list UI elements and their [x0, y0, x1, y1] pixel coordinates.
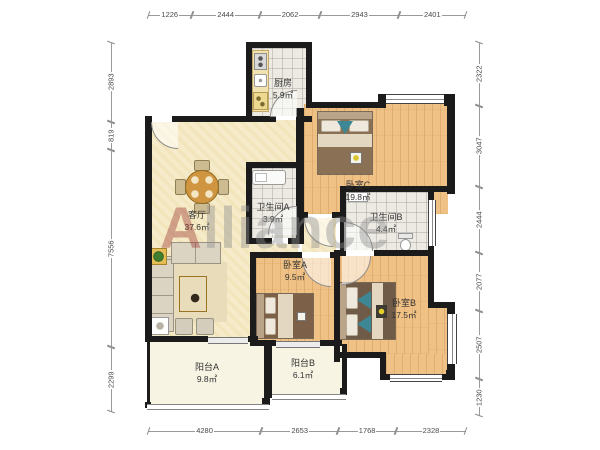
side-table [151, 317, 169, 335]
wall-segment [246, 162, 302, 168]
dimension-value: 1768 [358, 427, 377, 435]
stove-icon [254, 53, 267, 70]
dimension-value: 3047 [475, 137, 483, 156]
dimension-segment: 1226 [148, 8, 192, 22]
wall-segment [250, 252, 256, 346]
dimension-chain-bottom: 4280265317682328 [148, 424, 466, 438]
dimension-segment: 1230 [472, 379, 486, 416]
bed-sheet [278, 294, 293, 338]
wall-segment [306, 102, 384, 108]
floor-living-upper [250, 120, 298, 166]
pillow [346, 314, 358, 336]
dimension-value: 2893 [107, 73, 115, 92]
dimension-segment: 7556 [104, 150, 118, 347]
dimension-segment: 2322 [472, 42, 486, 106]
headboard [339, 283, 346, 339]
dimension-segment: 4280 [148, 424, 261, 438]
dimension-value: 819 [107, 129, 115, 144]
dimension-segment: 2444 [472, 187, 486, 254]
dimension-value: 2077 [475, 273, 483, 292]
dimension-value: 4280 [195, 427, 214, 435]
dimension-value: 7556 [107, 239, 115, 258]
ottoman [175, 318, 193, 335]
dimension-chain-right: 232230472444207725071230 [472, 42, 486, 416]
dimension-segment: 2328 [396, 424, 466, 438]
ottoman [196, 318, 214, 335]
room-area: 17.5㎡ [374, 310, 434, 320]
wall-segment [172, 116, 250, 122]
wall-segment [246, 42, 312, 48]
watermark-first-letter: A [160, 196, 203, 261]
dining-chair [218, 179, 229, 195]
wall-segment [246, 42, 252, 122]
wall-segment [250, 340, 276, 346]
dimension-value: 2507 [475, 335, 483, 354]
dimension-value: 1230 [475, 388, 483, 407]
pillow [265, 297, 276, 314]
bed-sheet [318, 134, 372, 147]
room-label-balcony-b: 阳台B 6.1㎡ [273, 358, 333, 380]
bed-lamp [297, 312, 306, 321]
wall-segment [147, 342, 150, 406]
dimension-value: 2444 [475, 211, 483, 230]
pillow [346, 287, 358, 309]
wall-segment [264, 340, 272, 398]
room-label-bedroom-b: 卧室B 17.5㎡ [374, 298, 434, 320]
balcony-glazing [147, 404, 269, 410]
dimension-value: 2299 [107, 370, 115, 389]
decor-pillow [357, 291, 371, 309]
window [390, 374, 442, 382]
bed-lamp [350, 152, 362, 164]
dimension-segment: 2653 [261, 424, 338, 438]
wall-post [446, 370, 455, 380]
dimension-chain-top: 12262444206229432401 [148, 8, 466, 22]
dimension-value: 2328 [422, 427, 441, 435]
dimension-segment: 2299 [104, 347, 118, 412]
dimension-value: 2401 [423, 11, 442, 19]
dimension-segment: 2943 [320, 8, 398, 22]
dimension-segment: 2507 [472, 311, 486, 379]
room-area: 5.9㎡ [253, 90, 313, 100]
headboard [318, 112, 372, 119]
bed-c [317, 111, 373, 175]
dimension-value: 2062 [281, 11, 300, 19]
wall-segment [447, 94, 455, 194]
window [447, 314, 457, 364]
dimension-segment: 2401 [399, 8, 466, 22]
dimension-value: 2322 [475, 64, 483, 83]
sliding-door [276, 341, 320, 348]
wall-segment [342, 344, 347, 392]
room-name: 卧室B [374, 298, 434, 310]
pillow [265, 318, 276, 335]
room-name: 阳台B [273, 358, 333, 370]
dimension-segment: 2893 [104, 42, 118, 122]
watermark-rest: lliance [203, 196, 391, 261]
dimension-segment: 1768 [338, 424, 396, 438]
headboard [257, 294, 264, 338]
sliding-door [208, 337, 248, 344]
dimension-segment: 2077 [472, 253, 486, 311]
wall-segment [145, 336, 208, 342]
dimension-segment: 2062 [260, 8, 321, 22]
wall-segment [378, 94, 386, 108]
balcony-glazing [272, 394, 346, 400]
room-area: 9.8㎡ [177, 374, 237, 384]
room-label-kitchen: 厨房 5.9㎡ [253, 78, 313, 100]
room-label-balcony-a: 阳台A 9.8㎡ [177, 362, 237, 384]
dimension-value: 2653 [290, 427, 309, 435]
room-name: 卧室A [265, 260, 325, 272]
wall-segment [334, 256, 340, 362]
bed-a [256, 293, 314, 339]
wall-segment [320, 340, 342, 346]
floor-plan: 厨房 5.9㎡ 卧室C 19.8㎡ 卫生间A 3.9㎡ 卫生间B 4.4㎡ 客厅… [0, 0, 600, 450]
dimension-segment: 2444 [192, 8, 260, 22]
dimension-chain-left: 289381975562299 [104, 42, 118, 412]
floor-bedroom-b-ext2 [386, 354, 448, 376]
dimension-segment: 819 [104, 122, 118, 150]
room-name: 阳台A [177, 362, 237, 374]
room-label-bedroom-a: 卧室A 9.5㎡ [265, 260, 325, 282]
wall-segment [145, 116, 152, 342]
room-name: 卧室C [328, 180, 388, 192]
room-area: 6.1㎡ [273, 370, 333, 380]
basin [255, 173, 267, 182]
window [428, 200, 436, 246]
room-name: 厨房 [253, 78, 313, 90]
dimension-value: 2444 [216, 11, 235, 19]
dimension-segment: 3047 [472, 106, 486, 187]
room-area: 9.5㎡ [265, 272, 325, 282]
decor-pillow [357, 315, 371, 333]
coffee-table [179, 276, 207, 312]
bathtub-icon [252, 170, 286, 185]
dimension-value: 1226 [160, 11, 179, 19]
dimension-value: 2943 [350, 11, 369, 19]
window [386, 94, 444, 104]
watermark: Alliance [160, 200, 390, 258]
